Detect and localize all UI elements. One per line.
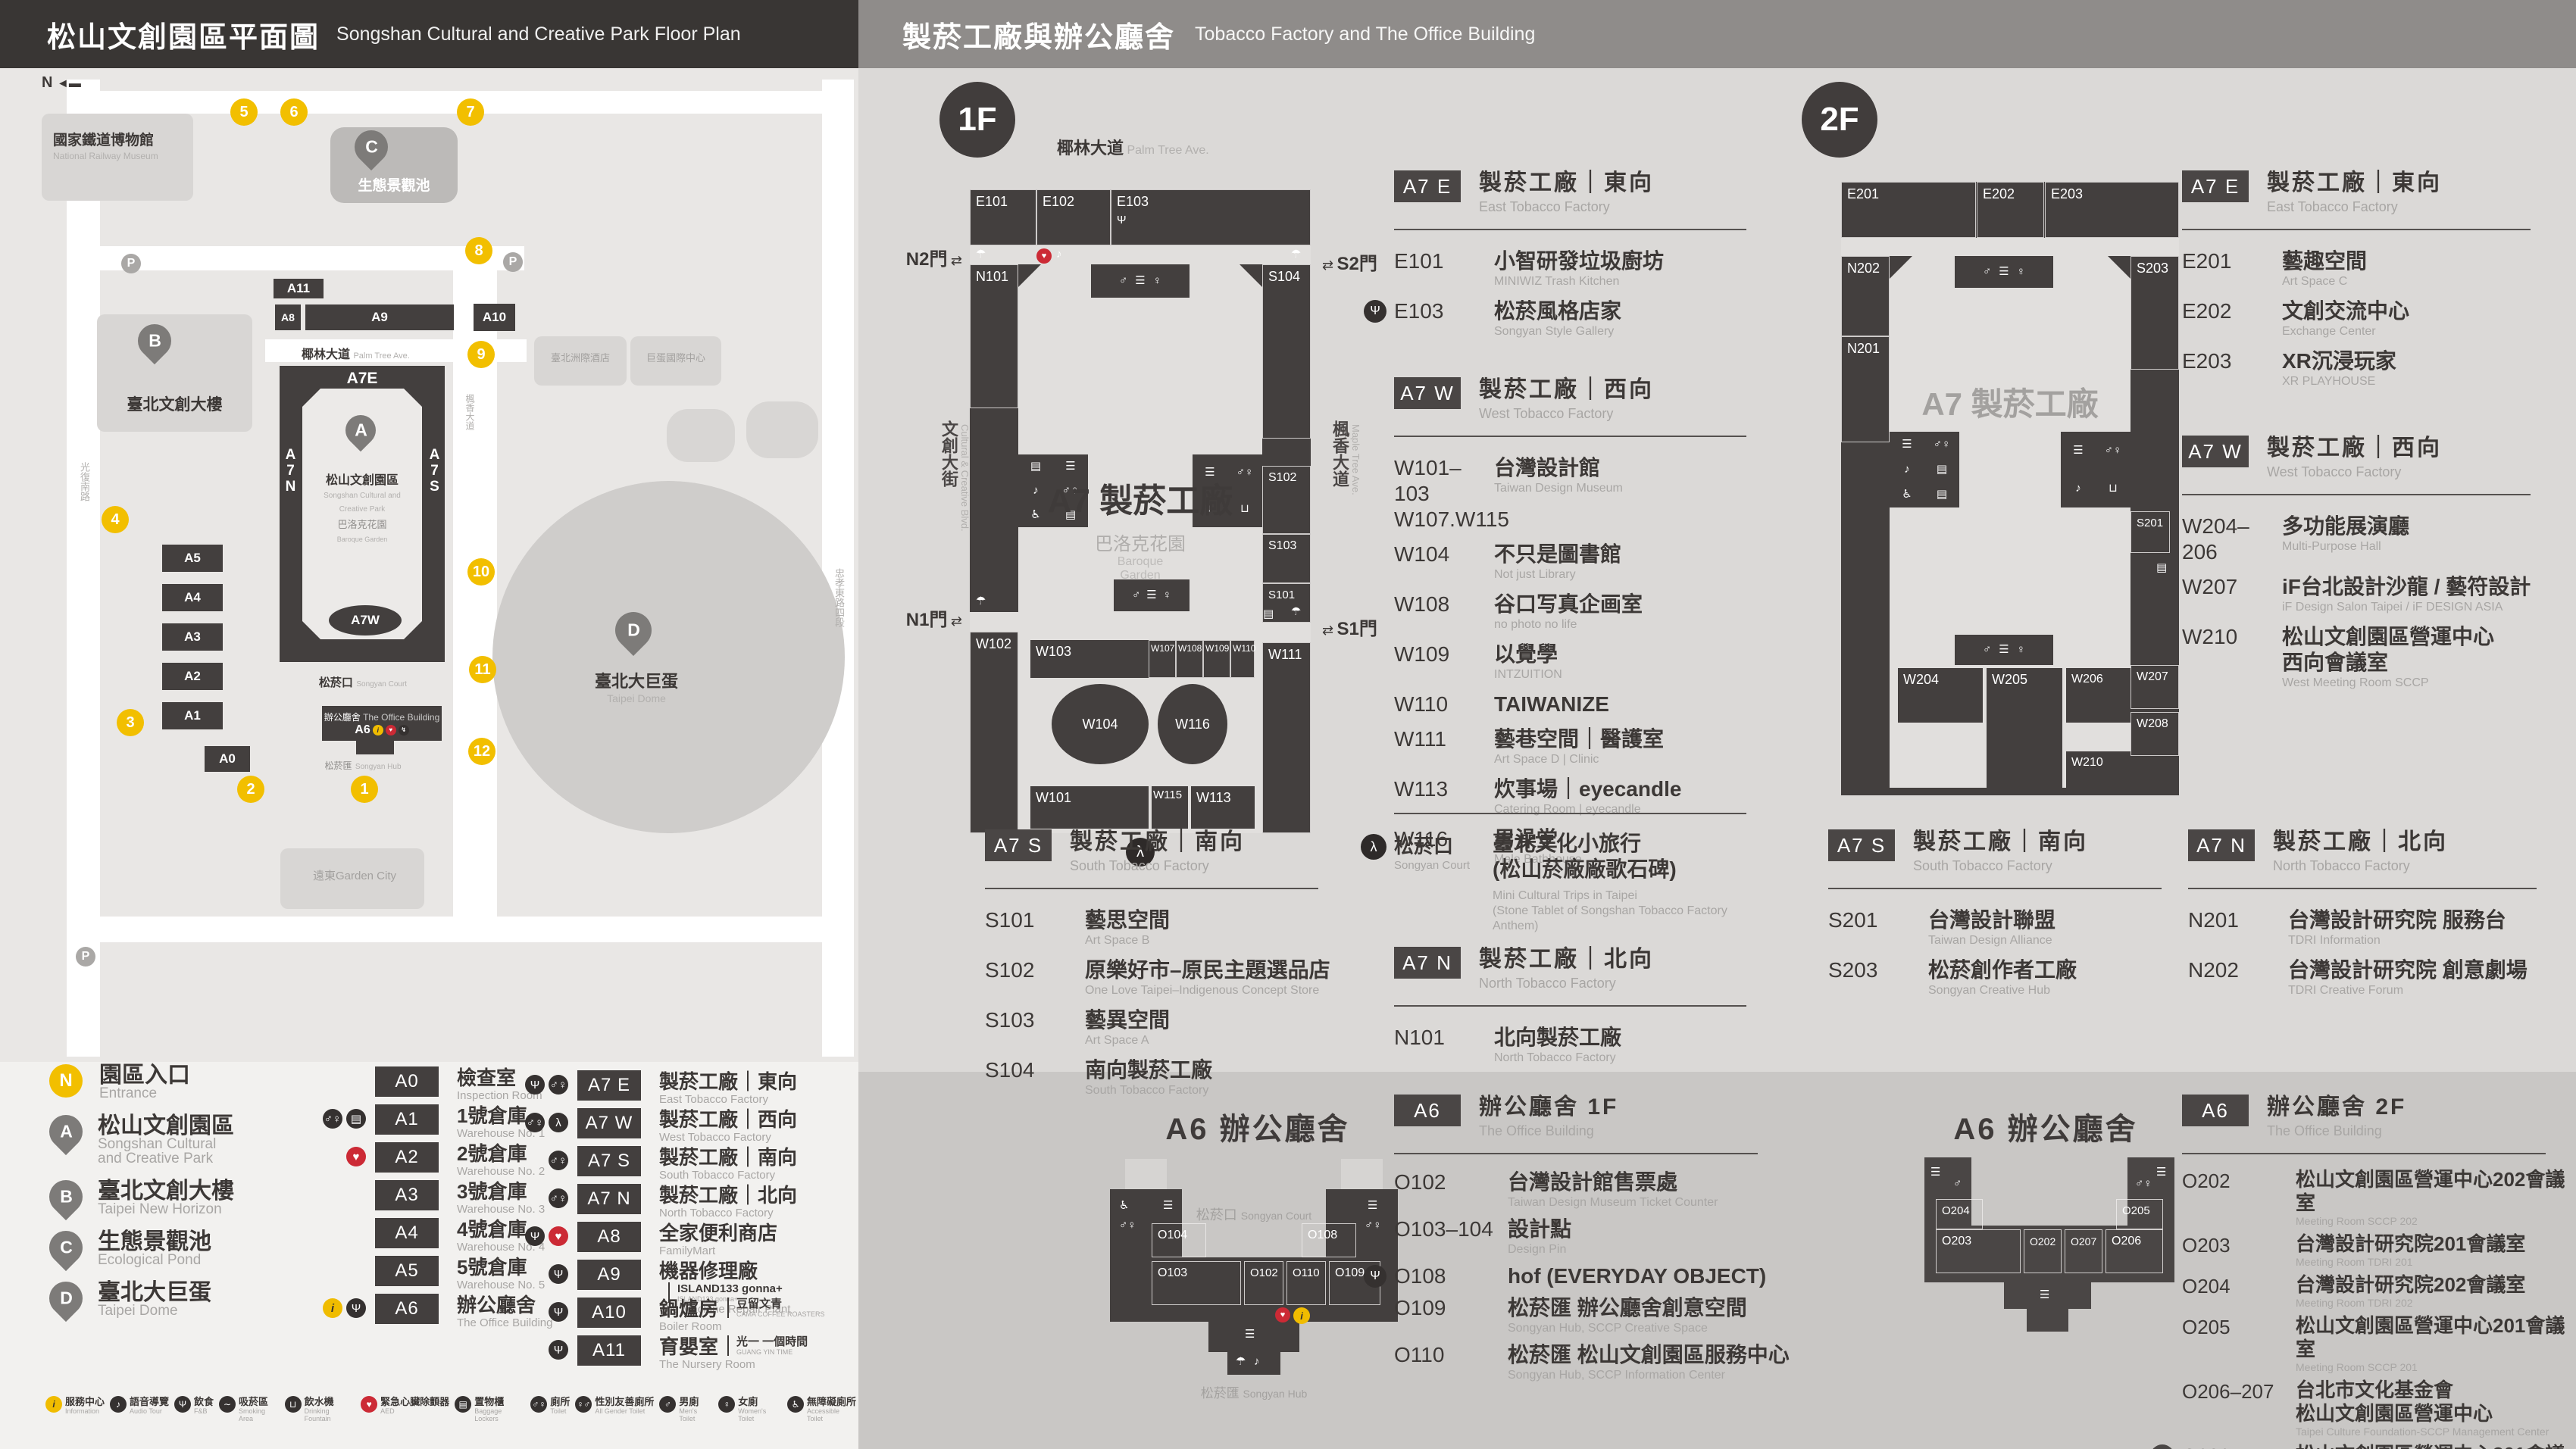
room-name-en: West Meeting Room SCCP — [2282, 676, 2494, 691]
f1-room-w116: W116 — [1158, 684, 1227, 764]
dome-annex-blob2 — [746, 401, 818, 458]
a6-room-o110: O110 — [1286, 1261, 1326, 1305]
audio-icon: ♪ — [1904, 462, 1910, 477]
f1-room-w111: W111 — [1262, 642, 1311, 833]
amenity-icon: ♀♂ — [575, 1396, 592, 1413]
section-badge: A6 — [2182, 1095, 2249, 1126]
room-name-zh: 松山文創園區營運中心301會議室 — [2296, 1443, 2568, 1449]
amenity-en: All Gender Toilet — [595, 1407, 654, 1415]
section-2f-a7w: A7 W 製菸工廠｜西向West Tobacco Factory W204–20… — [2182, 436, 2565, 700]
room-entry: E202 文創交流中心Exchange Center — [2182, 298, 2565, 339]
room-entry: O203 台灣設計研究院201會議室Meeting Room TDRI 201 — [2182, 1232, 2568, 1269]
women-icon: ♀ — [2017, 642, 2025, 657]
section-1f-a7w: A7 W 製菸工廠｜西向West Tobacco Factory W101–10… — [1394, 377, 1792, 876]
amenity-en: Drinking Fountain — [305, 1407, 356, 1422]
stairs-icon: ☰ — [1163, 1198, 1173, 1213]
room-name-zh: 松菸匯 松山文創園區服務中心 — [1508, 1342, 1790, 1368]
amenity-icon: ♂♀ — [530, 1396, 547, 1413]
court-note-zh: 臺北文化小旅行 (松山菸廠廠歌石碑) — [1493, 831, 1746, 882]
dome-label-en: Taipei Dome — [607, 692, 666, 704]
legend-building-en: The Nursery Room — [659, 1358, 755, 1371]
stairs-icon: ☰ — [2040, 1288, 2049, 1303]
room-id: W207 — [2182, 574, 2282, 615]
legend-building-badge: A6 — [375, 1294, 439, 1324]
room-name-zh: 不只是圖書館 — [1494, 542, 1621, 567]
amenity-en: AED — [380, 1407, 449, 1415]
room-name-zh: 谷口写真企画室 — [1494, 592, 1643, 617]
legend-row-icon: ▤ — [346, 1109, 366, 1129]
entrance-1: 1 — [351, 776, 378, 803]
room-entry: W109 以覺學INTZUITION — [1394, 642, 1792, 682]
legend-building-zh: 5號倉庫 — [457, 1256, 527, 1279]
room-id: N202 — [2188, 957, 2288, 998]
room-entry: S203 松菸創作者工廠Songyan Creative Hub — [1828, 957, 2177, 998]
legend-building-en: North Tobacco Factory — [659, 1207, 774, 1219]
amenity-item: ⊔ 飲水機Drinking Fountain — [285, 1396, 356, 1422]
f1-garden-zh: 巴洛克花園 — [1095, 534, 1186, 554]
room-id: E103 — [1394, 298, 1494, 339]
legend-buildings-col2: ♂♀Ψ A7 E 製菸工廠｜東向 East Tobacco Factory λ♂… — [523, 1070, 858, 1365]
amenity-item: i 服務中心Information — [45, 1396, 105, 1415]
room-name-en: One Love Taipei–Indigenous Concept Store — [1085, 983, 1330, 998]
court-note-en: Mini Cultural Trips in Taipei (Stone Tab… — [1493, 888, 1746, 934]
umbrella-icon: ☂ — [976, 247, 986, 262]
f2-south-gate-block: ♂☰♀ — [1955, 635, 2053, 665]
room-entry: O204 台灣設計研究院202會議室Meeting Room TDRI 202 — [2182, 1273, 2568, 1310]
legend-building-zh: 鍋爐房 — [659, 1298, 718, 1320]
stairs-icon: ☰ — [1146, 588, 1156, 603]
room-name-en: Songyan Hub, SCCP Information Center — [1508, 1368, 1790, 1383]
section-title-zh: 製菸工廠｜東向 — [1479, 170, 1654, 196]
street-guangfu-label: 光復南路 — [77, 462, 92, 501]
legend-building-zh: 機器修理廠 — [659, 1260, 758, 1282]
amenity-icon: Ψ — [174, 1396, 191, 1413]
legend-building-row: ♂♀ A7 N 製菸工廠｜北向 North Tobacco Factory — [523, 1184, 858, 1213]
legend-building-en: West Tobacco Factory — [659, 1131, 771, 1144]
amenity-zh: 無障礙廁所 — [807, 1396, 856, 1407]
room-id: O109 — [1394, 1295, 1508, 1336]
legend-building-zh: 育嬰室 — [659, 1335, 718, 1358]
legend-row-icon: ♥ — [549, 1226, 568, 1246]
audio-icon: ♪ — [2075, 481, 2081, 496]
place-en: Ecological Pond — [98, 1252, 201, 1268]
info-icon: i — [1293, 1307, 1310, 1324]
legend-row-icon: ♥ — [346, 1147, 366, 1166]
room-name-zh: 松山文創園區營運中心201會議室 — [2296, 1314, 2568, 1361]
section-1f-a7n: A7 N 製菸工廠｜北向North Tobacco Factory N101 北… — [1394, 947, 1773, 1075]
room-entry: Ψ O108 hof (EVERYDAY OBJECT) — [1394, 1263, 1792, 1289]
entrance-3: 3 — [117, 709, 144, 736]
parking-icon: P — [121, 254, 141, 273]
legend-entrance-zh: 園區入口 — [99, 1063, 190, 1088]
f2-east-amenity-block: ☰♂♀ ♪⊔ — [2061, 432, 2131, 507]
room-name-zh: 小智研發垃圾廚坊 — [1494, 248, 1664, 274]
road-maple — [453, 270, 497, 929]
room-entry: N202 台灣設計研究院 創意劇場TDRI Creative Forum — [2188, 957, 2567, 998]
park-panel: N ◄▬ 國家鐵道博物館 National Railway Museum 臺北洲… — [0, 68, 858, 1449]
legend-row-icon: ♂♀ — [323, 1109, 342, 1129]
legend-row-icon: Ψ — [549, 1340, 568, 1360]
amenity-icon: i — [45, 1396, 62, 1413]
legend-building-row: A0 檢查室 Inspection Room — [320, 1066, 552, 1096]
section-badge: A7 S — [985, 829, 1052, 861]
room-id: O205 — [2182, 1314, 2296, 1374]
amenity-item: ▤ 置物櫃Baggage Lockers — [455, 1396, 525, 1422]
compass-north-icon: N ◄▬ — [42, 74, 81, 92]
amenity-icon: ⊔ — [285, 1396, 302, 1413]
a6-room-o207: O207 — [2065, 1229, 2102, 1273]
f1-top-corridor — [970, 245, 1311, 264]
entrance-11: 11 — [469, 656, 496, 683]
section-title-en: North Tobacco Factory — [2273, 858, 2448, 874]
section-title-zh: 製菸工廠｜北向 — [1479, 947, 1654, 973]
amenity-en: Information — [65, 1407, 105, 1415]
place-en: Songshan Cultural and Creative Park — [98, 1136, 216, 1166]
f1-south-gate-block: ♂☰♀ — [1114, 579, 1190, 611]
entrance-9: 9 — [467, 341, 495, 368]
section-title-zh: 製菸工廠｜北向 — [2273, 829, 2448, 855]
room-entry: O206–207 台北市文化基金會 松山文創園區營運中心Taipei Cultu… — [2182, 1379, 2568, 1438]
a6-2f-stub2 — [2027, 1309, 2068, 1332]
men-icon: ♂ — [1983, 264, 1991, 279]
section-badge: A7 S — [1828, 829, 1895, 861]
lockers-icon: ▤ — [1030, 459, 1041, 474]
amenity-item: ♂♀ 廁所Toilet — [530, 1396, 570, 1415]
room-name-zh: 藝趣空間 — [2282, 248, 2367, 274]
room-entry: W101–103 W107.W115 台灣設計館Taiwan Design Mu… — [1394, 455, 1792, 532]
park-name-label-en: Songshan Cultural and Creative Park — [324, 492, 401, 514]
block-a7w: A7W — [329, 605, 402, 635]
legend-building-en: East Tobacco Factory — [659, 1093, 768, 1106]
f2-room-n201: N201 — [1841, 336, 1890, 442]
legend-building-badge: A9 — [577, 1260, 641, 1290]
room-entry: S201 台灣設計聯盟Taiwan Design Alliance — [1828, 907, 2177, 948]
songyan-hub-label: 松菸匯 — [324, 760, 352, 771]
place-en: Taipei Dome — [98, 1303, 178, 1319]
legend-entrance-en: Entrance — [99, 1085, 157, 1101]
songyan-court-label: 松菸口 — [319, 676, 353, 689]
toilet-icon: ♂♀ — [1119, 1218, 1136, 1233]
room-name-en: Multi-Purpose Hall — [2282, 539, 2409, 554]
place-pin-icon: A — [42, 1108, 89, 1155]
amenity-en: Accessible Toilet — [807, 1407, 856, 1422]
legend-building-badge: A10 — [577, 1298, 641, 1328]
legend-building-zh: 全家便利商店 — [659, 1222, 777, 1244]
legend-building-zh: 檢查室 — [457, 1066, 516, 1089]
eat-icon: Ψ — [1111, 214, 1127, 226]
stairs-icon: ☰ — [1245, 1327, 1255, 1342]
legend-building-zh: 4號倉庫 — [457, 1218, 527, 1241]
a6-1f-hub-label: 松菸匯 Songyan Hub — [1182, 1382, 1326, 1401]
f1-room-s101: S101▤ — [1262, 583, 1311, 623]
room-entry: E201 藝趣空間Art Space C — [2182, 248, 2565, 289]
pond-label: 生態景觀池 — [330, 174, 458, 195]
aed-icon: ♥ — [386, 725, 396, 735]
legend-places: A 松山文創園區 Songshan Cultural and Creative … — [49, 1115, 234, 1319]
room-id: W111 — [1394, 726, 1494, 767]
entrance-12: 12 — [468, 738, 496, 765]
room-id: N201 — [2188, 907, 2288, 948]
block-a6-office: 辦公廳舍 The Office Building A6i♥↯ — [322, 706, 442, 741]
block-a3: A3 — [162, 623, 223, 651]
room-pre-icon: Ψ — [1364, 300, 1386, 323]
room-name-en: Art Space A — [1085, 1033, 1170, 1048]
amenity-zh: 緊急心臟除顫器 — [380, 1396, 449, 1407]
railway-museum-label: 國家鐵道博物館 — [53, 133, 154, 148]
place-pin-icon: D — [42, 1275, 89, 1322]
f2-building-label: A7 製菸工廠 — [1890, 379, 2131, 425]
entrance-6: 6 — [280, 98, 308, 126]
room-name-en: Meeting Room TDRI 201 — [2296, 1256, 2525, 1269]
parking-icon: P — [76, 947, 95, 967]
a6-room-o203: O203 — [1936, 1229, 2021, 1273]
f1-gate-s2: ⇄ S2門 — [1322, 248, 1377, 275]
legend-building-row: ♂♀ A7 S 製菸工廠｜南向 South Tobacco Factory — [523, 1146, 858, 1176]
umbrella-icon: ☂ — [976, 594, 986, 609]
f1-street-top-en: Palm Tree Ave. — [1127, 144, 1208, 157]
room-id: W113 — [1394, 776, 1494, 817]
men-icon: ♂ — [1119, 273, 1127, 289]
amenity-zh: 性別友善廁所 — [595, 1396, 654, 1407]
f1-street-top-zh: 椰林大道 — [1057, 139, 1124, 158]
amenity-item: ♪ 語音導覽Audio Tour — [110, 1396, 169, 1415]
f1-room-w102: W102 — [970, 632, 1018, 833]
a6-room-o202: O202 — [2024, 1229, 2062, 1273]
section-badge: A7 N — [2188, 829, 2255, 861]
room-name-en: Not just Library — [1494, 567, 1621, 582]
legend-building-zh: 2號倉庫 — [457, 1142, 527, 1165]
entrance-8: 8 — [465, 237, 492, 264]
block-a10: A10 — [474, 304, 515, 331]
room-name-zh: 南向製菸工廠 — [1085, 1057, 1212, 1083]
amenity-zh: 語音導覽 — [130, 1396, 169, 1407]
f2-top-corridor — [1841, 238, 2179, 256]
legend-place-row: C 生態景觀池 Ecological Pond — [49, 1231, 234, 1268]
f1-s1-corridor — [1262, 623, 1311, 642]
street-zhongxiao-label: 忠孝東路四段 — [832, 568, 846, 627]
room-id: O108 — [1394, 1263, 1508, 1289]
block-a11: A11 — [274, 279, 324, 298]
f1-room-e101: E101 — [970, 189, 1036, 245]
legend-building-row: ♂♀Ψ A7 E 製菸工廠｜東向 East Tobacco Factory — [523, 1070, 858, 1100]
legend-building-row: ♥Ψ A8 全家便利商店 FamilyMart — [523, 1222, 858, 1251]
men-icon: ♂ — [1953, 1176, 1962, 1191]
room-entry: W108 谷口写真企画室no photo no life — [1394, 592, 1792, 632]
floor2-badge: 2F — [1802, 82, 1877, 158]
legend-building-badge: A0 — [375, 1066, 439, 1097]
f1-street-left-zh: 文創大街 — [936, 420, 961, 487]
f2-room-e201: E201 — [1841, 182, 1976, 238]
room-name-zh: 北向製菸工廠 — [1494, 1025, 1621, 1051]
f1-room-w110: W110 — [1230, 640, 1255, 678]
entrance-symbol: N — [49, 1064, 83, 1098]
amenity-icon: ♿ — [787, 1396, 804, 1413]
amenity-icon: ♪ — [110, 1396, 127, 1413]
songyan-court-label-en: Songyan Court — [356, 680, 407, 689]
f1-room-w103: W103 — [1030, 640, 1149, 678]
toilet-icon: ♂♀ — [2105, 443, 2122, 458]
stairs-icon: ☰ — [1065, 459, 1075, 474]
amenity-item: ♿ 無障礙廁所Accessible Toilet — [787, 1396, 856, 1422]
place-zh: 松山文創園區 — [98, 1113, 234, 1138]
section-badge: A6 — [1394, 1095, 1461, 1126]
legend-building-zh: 製菸工廠｜南向 — [659, 1146, 797, 1169]
place-en: Taipei New Horizon — [98, 1201, 222, 1217]
legend-place-row: B 臺北文創大樓 Taipei New Horizon — [49, 1180, 234, 1217]
f1-street-right-en: Maple Tree Ave. — [1350, 424, 1361, 495]
room-name-en: Art Space D | Clinic — [1494, 752, 1664, 767]
umbrella-icon: ☂ — [1291, 604, 1301, 620]
room-entry: E203 XR沉浸玩家XR PLAYHOUSE — [2182, 348, 2565, 389]
amenity-zh: 飲食 — [194, 1396, 214, 1407]
a6-room-o103: O103 — [1152, 1261, 1241, 1305]
f1-room-w115: W115 — [1152, 786, 1188, 829]
section-a6-2f: A6 辦公廳舍 2FThe Office Building O202 松山文創園… — [2182, 1095, 2568, 1449]
lockers-icon: ▤ — [1937, 487, 1947, 502]
amenity-en: Women's Toilet — [738, 1407, 782, 1422]
f2-room-e202: E202 — [1977, 182, 2044, 238]
legend-building-brand: 豆留文青CAMA COFFEE ROASTERS — [727, 1298, 825, 1318]
women-icon: ♀ — [1163, 588, 1171, 603]
amenity-en: Toilet — [550, 1407, 570, 1415]
room-id: N101 — [1394, 1025, 1494, 1066]
legend-building-brand: 光一 一個時間GUANG YIN TIME — [727, 1335, 808, 1356]
men-icon: ♂ — [1132, 588, 1140, 603]
right-header-title-zh: 製菸工廠與辦公廳舍 — [902, 14, 1175, 55]
room-entry: W113 炊事場｜eyecandleCatering Room | eyecan… — [1394, 776, 1792, 817]
place-zh: 臺北大巨蛋 — [98, 1280, 211, 1305]
stairs-icon: ☰ — [1930, 1165, 1940, 1180]
room-id: S201 — [1828, 907, 1928, 948]
f2-a7-building: E201 E202 E203 N202 N201 S203 S201 ▤ A7 … — [1841, 182, 2179, 795]
legend-building-badge: A7 S — [577, 1146, 641, 1176]
left-header: 松山文創園區平面圖 Songshan Cultural and Creative… — [0, 0, 858, 68]
section-title-zh: 製菸工廠｜西向 — [1479, 377, 1654, 403]
block-a2: A2 — [162, 663, 223, 690]
room-id: W108 — [1394, 592, 1494, 632]
amenity-icon: ♀ — [718, 1396, 735, 1413]
block-a1: A1 — [162, 702, 223, 729]
right-header: 製菸工廠與辦公廳舍 Tobacco Factory and The Office… — [858, 0, 2576, 68]
section-title-en: South Tobacco Factory — [1913, 858, 2088, 874]
section-badge: A7 E — [1394, 170, 1461, 202]
f2-bottom-wall — [1841, 788, 2179, 795]
room-name-en: MINIWIZ Trash Kitchen — [1494, 274, 1664, 289]
f1-street-left-en: Cultural & Creative Blvd. — [959, 424, 971, 532]
legend-row-icon: λ — [549, 1113, 568, 1132]
f1-gate-n2: N2門 ⇄ — [856, 244, 962, 270]
room-name-zh: 松菸創作者工廠 — [1928, 957, 2077, 983]
section-badge: A7 E — [2182, 170, 2249, 202]
legend-building-badge: A11 — [577, 1335, 641, 1366]
room-entry: O109 松菸匯 辦公廳舍創意空間Songyan Hub, SCCP Creat… — [1394, 1295, 1792, 1336]
room-name-zh: 藝異空間 — [1085, 1007, 1170, 1033]
block-a0: A0 — [205, 746, 250, 772]
legend-row-icon: ♂♀ — [549, 1188, 568, 1208]
room-entry: O205 松山文創園區營運中心201會議室Meeting Room SCCP 2… — [2182, 1314, 2568, 1374]
room-name-en: Meeting Room SCCP 202 — [2296, 1215, 2568, 1228]
hotel2-label: 巨蛋國際中心 — [630, 350, 721, 364]
place-pin-icon: C — [42, 1224, 89, 1271]
room-name-zh: 台灣設計館 — [1494, 455, 1623, 481]
stairs-icon: ☰ — [1368, 1198, 1377, 1213]
room-name-en: North Tobacco Factory — [1494, 1051, 1621, 1066]
legend-building-badge: A7 E — [577, 1070, 641, 1101]
f1-room-n101: N101 — [970, 264, 1018, 408]
f1-garden-en: Baroque Garden — [1118, 555, 1164, 582]
section-2f-a7e: A7 E 製菸工廠｜東向East Tobacco Factory E201 藝趣… — [2182, 170, 2565, 398]
section-title-en: North Tobacco Factory — [1479, 976, 1654, 992]
legend-row-icon: i — [323, 1298, 342, 1318]
room-name-en: iF Design Salon Taipei / iF DESIGN ASIA — [2282, 600, 2531, 615]
room-name-zh: 台灣設計研究院 服務台 — [2288, 907, 2506, 933]
f2-room-s203: S203 — [2131, 256, 2179, 370]
legend-building-zh: 3號倉庫 — [457, 1180, 527, 1203]
room-id: O203 — [2182, 1232, 2296, 1269]
room-name-en: TDRI Creative Forum — [2288, 983, 2528, 998]
railway-museum-label-en: National Railway Museum — [53, 151, 158, 161]
legend-building-badge: A2 — [375, 1142, 439, 1173]
legend-building-row: Ψ A11 育嬰室光一 一個時間GUANG YIN TIME The Nurse… — [523, 1335, 858, 1365]
legend-building-en: Boiler Room — [659, 1320, 722, 1333]
room-name-zh: 多功能展演廳 — [2282, 514, 2409, 539]
room-entry: S104 南向製菸工廠South Tobacco Factory — [985, 1057, 1364, 1098]
amenity-en: Baggage Lockers — [474, 1407, 525, 1422]
court-label-zh: 松菸口 — [1394, 835, 1453, 857]
legend-building-badge: A8 — [577, 1222, 641, 1252]
f1-n1-corridor — [970, 612, 1018, 632]
legend-row-icon: ♂♀ — [525, 1113, 545, 1132]
road-inner-north — [100, 246, 524, 270]
room-entry: O103–104 設計點Design Pin — [1394, 1216, 1792, 1257]
aed-icon: ♥ — [1036, 248, 1052, 264]
room-entry: W204–206 多功能展演廳Multi-Purpose Hall — [2182, 514, 2565, 565]
court-label-en: Songyan Court — [1394, 859, 1470, 872]
stairs-icon: ☰ — [1902, 437, 1912, 452]
f1-room-e103: E103Ψ — [1111, 189, 1311, 245]
legend-building-badge: A4 — [375, 1218, 439, 1248]
room-entry: N101 北向製菸工廠North Tobacco Factory — [1394, 1025, 1773, 1066]
legend-row-icon: Ψ — [525, 1226, 545, 1246]
info-icon: i — [373, 725, 383, 735]
f1-gate-n1: N1門 ⇄ — [856, 604, 962, 631]
park-name-label: 松山文創園區 — [326, 474, 399, 487]
garden-city-label: 遠東Garden City — [286, 867, 423, 883]
palm-ave-label-en: Palm Tree Ave. — [353, 351, 409, 361]
room-name-en: Meeting Room SCCP 201 — [2296, 1361, 2568, 1374]
legend-building-row: Ψ A10 鍋爐房豆留文青CAMA COFFEE ROASTERS Boiler… — [523, 1298, 858, 1327]
legend-building-badge: A7 W — [577, 1108, 641, 1138]
section-a6-1f: A6 辦公廳舍 1FThe Office Building O102 台灣設計館… — [1394, 1095, 1792, 1389]
a6-room-o104: O104 — [1152, 1223, 1206, 1257]
room-name-en: no photo no life — [1494, 617, 1643, 632]
room-name-zh: 台灣設計聯盟 — [1928, 907, 2055, 933]
entrance-7: 7 — [457, 98, 484, 126]
amenity-item: Ψ 飲食F&B — [174, 1396, 214, 1415]
dome-label: 臺北大巨蛋 — [595, 672, 678, 691]
room-name-en: INTZUITION — [1494, 667, 1562, 682]
toilet-icon: ♂♀ — [1934, 437, 1951, 452]
room-entry: S102 原樂好市–原民主題選品店One Love Taipei–Indigen… — [985, 957, 1364, 998]
room-entry: 3F O302 松山文創園區營運中心301會議室Meeting Room SCC… — [2182, 1443, 2568, 1449]
accessible-icon: ♿ — [1119, 1198, 1129, 1213]
room-entry: W111 藝巷空間｜醫護室Art Space D | Clinic — [1394, 726, 1792, 767]
f2-room-w205: W205 — [1987, 668, 2062, 795]
entrance-5: 5 — [230, 98, 258, 126]
a6-pillar — [1341, 1159, 1383, 1189]
room-name-en: Songyan Creative Hub — [1928, 983, 2077, 998]
section-1f-a7s: A7 S 製菸工廠｜南向South Tobacco Factory S101 藝… — [985, 829, 1364, 1107]
